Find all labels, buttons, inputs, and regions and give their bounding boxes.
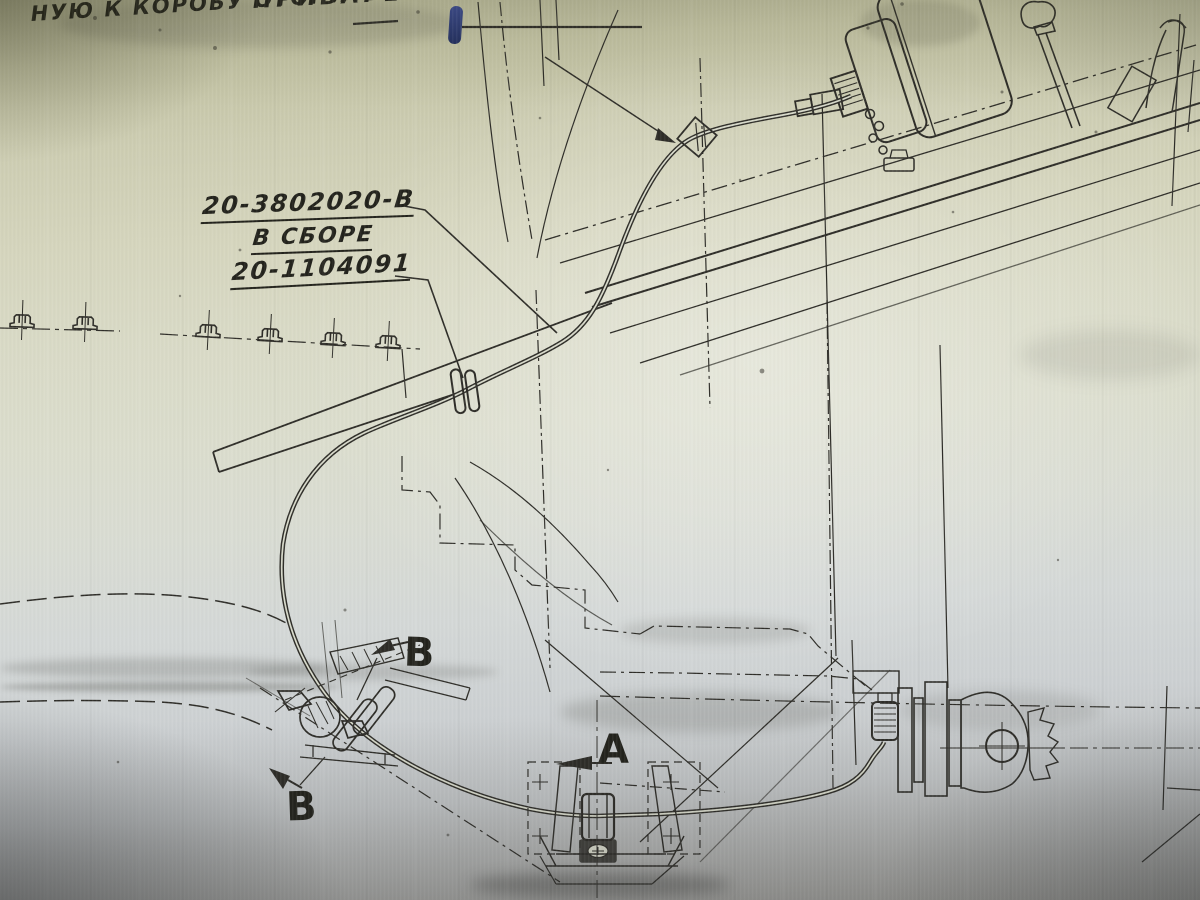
hex-bolt bbox=[320, 317, 346, 358]
view-marker-a: А bbox=[598, 730, 629, 770]
steering-column-lines bbox=[545, 45, 1200, 375]
leader-arrowhead bbox=[655, 128, 676, 143]
universal-joint-assembly bbox=[853, 671, 1200, 796]
hex-bolt bbox=[73, 302, 98, 343]
cap-chain bbox=[866, 110, 915, 172]
cable-clamp-bracket-b bbox=[246, 620, 470, 766]
view-marker-b-upper: В bbox=[403, 632, 435, 673]
splined-shaft-end bbox=[1028, 708, 1058, 780]
part-suffix: В СБОРЕ bbox=[251, 222, 375, 255]
steering-wheel-hub bbox=[1108, 14, 1194, 206]
part-label-cable-assembly-suffix: В СБОРЕ bbox=[251, 222, 375, 251]
hex-bolt bbox=[10, 300, 35, 341]
speedometer-head bbox=[811, 0, 1015, 171]
hex-bolt bbox=[195, 309, 221, 350]
hex-bolt bbox=[257, 313, 283, 354]
hex-bolt bbox=[375, 320, 401, 361]
firewall-bolt-row bbox=[0, 300, 420, 398]
cable-clamp bbox=[677, 117, 716, 156]
blue-ink-mark bbox=[448, 6, 464, 45]
photographed-engineering-drawing: ПРИВАРЕН- НУЮ К КОРОБУ ОТОПИТЕЛЯ. 20-380… bbox=[0, 0, 1200, 900]
view-marker-b-lower: В bbox=[285, 786, 317, 827]
